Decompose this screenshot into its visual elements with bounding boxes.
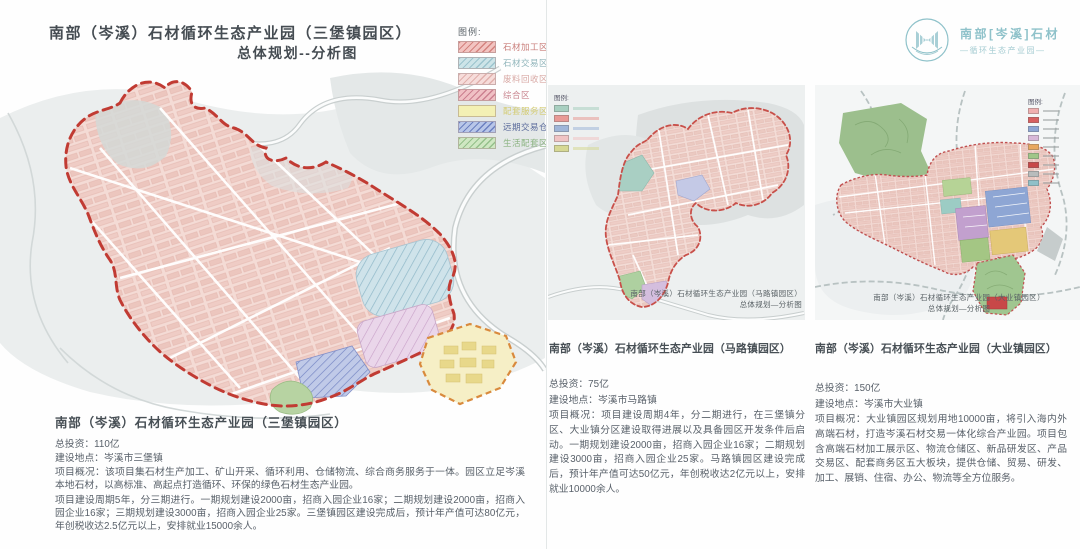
legend-label: 石材加工区 (503, 41, 548, 53)
planning-poster: 南部（岑溪）石材循环生态产业园（三堡镇园区） 总体规划--分析图 (0, 0, 1080, 549)
logo-text: 南部[岑溪]石材 —循环生态产业园— (960, 25, 1060, 56)
mini-label-bar (1043, 182, 1059, 185)
mini-label-bar (1043, 110, 1059, 113)
overview-paragraph: 项目概况：大业镇园区规划用地10000亩，将引入海内外高端石材，打造岑溪石材交易… (815, 413, 1067, 486)
mini-legend: 图例: (1028, 96, 1059, 189)
sanbao-section: 南部（岑溪）石材循环生态产业园（三堡镇园区） 总投资：110亿 建设地点：岑溪市… (55, 412, 525, 534)
mini-legend-title: 图例: (1028, 96, 1059, 106)
map-caption: 南部（岑溪）石材循环生态产业园（马路镇园区） 总体规划—分析图 (578, 289, 802, 310)
mini-label-bar (573, 117, 599, 121)
mini-swatch (1028, 162, 1039, 168)
panel-divider (546, 0, 547, 549)
mini-swatch (1028, 135, 1039, 141)
mini-label-bar (1043, 119, 1059, 122)
mini-label-bar (1043, 146, 1059, 149)
mini-swatch (1028, 108, 1039, 114)
mini-swatch (1028, 117, 1039, 123)
map-caption-line1: 南部（岑溪）石材循环生态产业园（马路镇园区） (578, 289, 802, 300)
legend-swatch (458, 105, 496, 117)
mini-label-bar (1043, 173, 1059, 176)
legend-label: 综合区 (503, 89, 530, 101)
mini-label-bar (573, 127, 599, 131)
page-title: 南部（岑溪）石材循环生态产业园（三堡镇园区） (8, 22, 453, 43)
legend-item: 综合区 (458, 90, 558, 100)
section-body: 总投资：75亿 建设地点：岑溪市马路镇 项目概况：项目建设周期4年，分二期进行，… (549, 378, 805, 498)
mini-swatch (554, 145, 569, 152)
park-logo: 南部[岑溪]石材 —循环生态产业园— (903, 16, 1060, 64)
mini-label-bar (1043, 128, 1059, 131)
map-caption: 南部（岑溪）石材循环生态产业园（大业镇园区） 总体规划—分析图 (850, 293, 1068, 314)
phases-paragraph: 项目建设周期5年，分三期进行。一期规划建设2000亩，招商入园企业16家；二期规… (55, 494, 525, 533)
legend-swatch (458, 121, 496, 133)
location-line: 建设地点：岑溪市三堡镇 (55, 452, 525, 465)
legend-item: 废料回收区 (458, 74, 558, 84)
investment-line: 总投资：75亿 (549, 378, 805, 393)
mini-legend-item (1028, 135, 1059, 141)
map-legend: 图例: 石材加工区 石材交易区 废料回收区 综合区 配套服务区 远期交易仓储 生… (458, 25, 558, 154)
investment-line: 总投资：110亿 (55, 438, 525, 451)
mini-swatch (554, 105, 569, 112)
investment-line: 总投资：150亿 (815, 382, 1067, 397)
section-body: 总投资：150亿 建设地点：岑溪市大业镇 项目概况：大业镇园区规划用地10000… (815, 382, 1067, 487)
yellow-expansion-zone (420, 324, 516, 404)
mini-swatch (1028, 180, 1039, 186)
mini-legend-item (554, 105, 599, 112)
section-heading: 南部（岑溪）石材循环生态产业园（大业镇园区） (815, 340, 1067, 356)
mini-label-bar (573, 147, 599, 151)
map-caption-line2: 总体规划—分析图 (850, 304, 1068, 315)
mini-legend-item (1028, 171, 1059, 177)
map-caption-line1: 南部（岑溪）石材循环生态产业园（大业镇园区） (850, 293, 1068, 304)
mini-legend-item (554, 145, 599, 152)
mini-swatch (1028, 153, 1039, 159)
legend-item: 远期交易仓储 (458, 122, 558, 132)
mini-legend-item (554, 135, 599, 142)
section-heading: 南部（岑溪）石材循环生态产业园（马路镇园区） (549, 340, 805, 356)
map-caption-line2: 总体规划—分析图 (578, 300, 802, 311)
legend-swatch (458, 137, 496, 149)
logo-name: 南部[岑溪]石材 (960, 25, 1060, 42)
location-line: 建设地点：岑溪市大业镇 (815, 398, 1067, 413)
legend-label: 废料回收区 (503, 73, 548, 85)
legend-item: 生活配套区 (458, 138, 558, 148)
legend-swatch (458, 57, 496, 69)
mini-label-bar (1043, 137, 1059, 140)
mini-swatch (1028, 144, 1039, 150)
mini-legend-title: 图例: (554, 92, 599, 102)
section-body: 总投资：110亿 建设地点：岑溪市三堡镇 项目概况：该项目集石材生产加工、矿山开… (55, 438, 525, 533)
mini-legend-item (554, 125, 599, 132)
mini-swatch (1028, 126, 1039, 132)
mini-legend-item (1028, 144, 1059, 150)
mini-label-bar (1043, 164, 1059, 167)
mini-legend-item (554, 115, 599, 122)
legend-swatch (458, 73, 496, 85)
mini-swatch (554, 135, 569, 142)
location-line: 建设地点：岑溪市马路镇 (549, 394, 805, 409)
logo-subname: —循环生态产业园— (960, 45, 1060, 56)
legend-label: 生活配套区 (503, 137, 548, 149)
malu-section: 南部（岑溪）石材循环生态产业园（马路镇园区） 总投资：75亿 建设地点：岑溪市马… (549, 340, 805, 499)
logo-emblem-icon (903, 16, 951, 64)
mini-legend-item (1028, 180, 1059, 186)
mini-swatch (554, 125, 569, 132)
mini-legend: 图例: (554, 92, 599, 155)
mini-label-bar (1043, 155, 1059, 158)
legend-item: 配套服务区 (458, 106, 558, 116)
mini-swatch (554, 115, 569, 122)
legend-item: 石材交易区 (458, 58, 558, 68)
mini-label-bar (573, 137, 599, 141)
legend-label: 配套服务区 (503, 105, 548, 117)
mini-legend-item (1028, 162, 1059, 168)
daye-section: 南部（岑溪）石材循环生态产业园（大业镇园区） 总投资：150亿 建设地点：岑溪市… (815, 340, 1067, 488)
legend-title: 图例: (458, 25, 558, 38)
overview-paragraph: 项目概况：项目建设周期4年，分二期进行，在三堡镇分区、大业镇分区建设取得进展以及… (549, 409, 805, 497)
mini-legend-item (1028, 117, 1059, 123)
mini-legend-item (1028, 108, 1059, 114)
overview-paragraph: 项目概况：该项目集石材生产加工、矿山开采、循环利用、仓储物流、综合商务服务于一体… (55, 466, 525, 492)
mini-legend-item (1028, 126, 1059, 132)
mini-swatch (1028, 171, 1039, 177)
mini-legend-item (1028, 153, 1059, 159)
legend-swatch (458, 89, 496, 101)
legend-label: 石材交易区 (503, 57, 548, 69)
mini-label-bar (573, 107, 599, 111)
section-heading: 南部（岑溪）石材循环生态产业园（三堡镇园区） (55, 412, 525, 431)
legend-swatch (458, 41, 496, 53)
legend-item: 石材加工区 (458, 42, 558, 52)
